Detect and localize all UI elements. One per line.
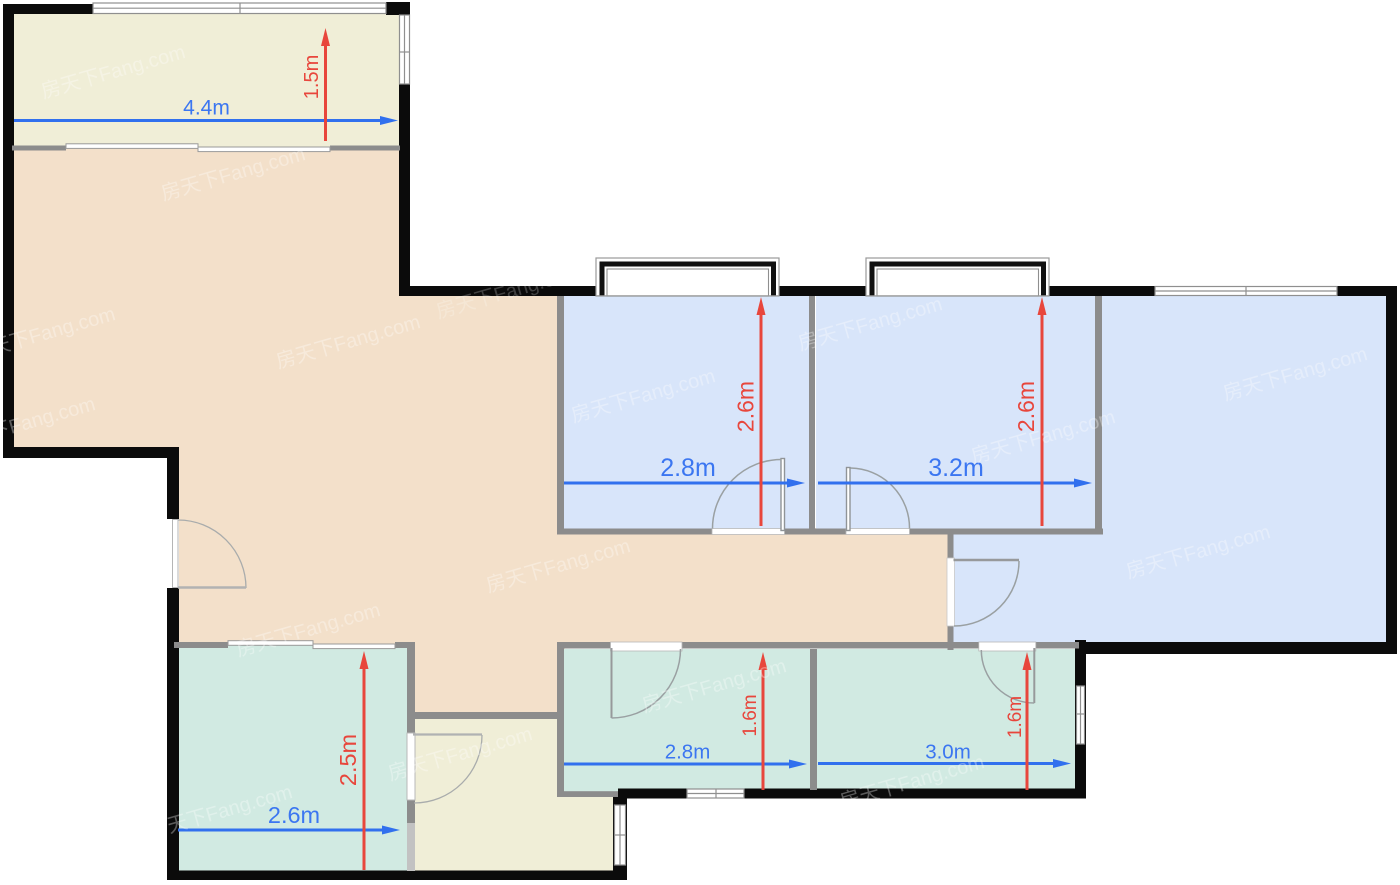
svg-text:2.8m: 2.8m <box>660 454 716 482</box>
svg-text:4.4m: 4.4m <box>183 97 230 120</box>
svg-text:1.5m: 1.5m <box>301 55 323 99</box>
svg-text:2.6m: 2.6m <box>733 381 759 432</box>
svg-text:2.5m: 2.5m <box>335 734 361 786</box>
svg-text:2.8m: 2.8m <box>665 741 711 764</box>
svg-text:1.6m: 1.6m <box>1005 696 1026 738</box>
svg-text:2.6m: 2.6m <box>1013 381 1039 432</box>
svg-text:1.6m: 1.6m <box>740 694 761 736</box>
